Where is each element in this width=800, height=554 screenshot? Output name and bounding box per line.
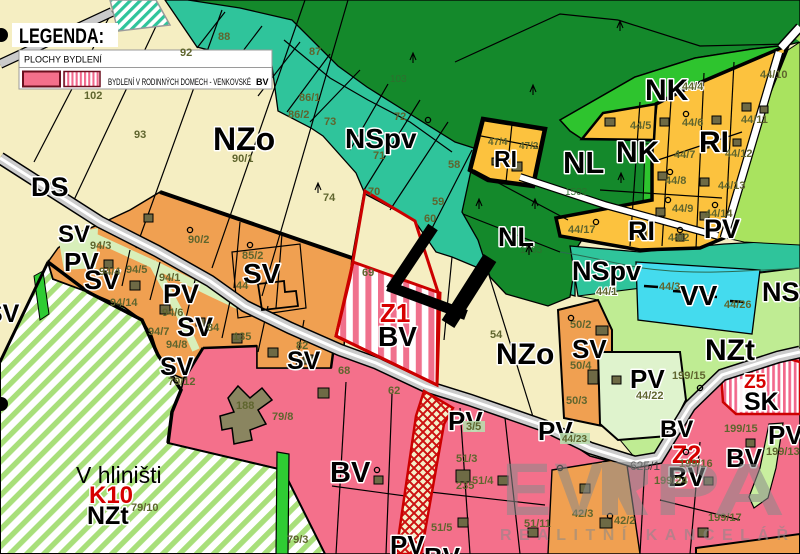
svg-text:72: 72 — [394, 111, 406, 123]
svg-text:44/9: 44/9 — [672, 203, 693, 215]
svg-text:44/7: 44/7 — [674, 149, 695, 161]
svg-text:94/6: 94/6 — [162, 307, 183, 319]
svg-text:44/4: 44/4 — [682, 81, 704, 93]
svg-text:NZt: NZt — [705, 334, 755, 367]
svg-text:199/15: 199/15 — [724, 423, 758, 435]
svg-text:51/5: 51/5 — [431, 522, 452, 534]
svg-text:79/8: 79/8 — [272, 411, 293, 423]
svg-text:PLOCHY BYDLENÍ: PLOCHY BYDLENÍ — [24, 55, 102, 65]
svg-text:79/12: 79/12 — [168, 376, 196, 388]
svg-text:44/8: 44/8 — [665, 175, 686, 187]
svg-text:84: 84 — [207, 322, 220, 334]
svg-text:EV: EV — [502, 448, 607, 531]
svg-text:90/2: 90/2 — [188, 234, 209, 246]
svg-text:79/10: 79/10 — [131, 502, 159, 514]
svg-text:NZt: NZt — [87, 502, 129, 530]
svg-text:94/8: 94/8 — [166, 339, 187, 351]
svg-text:RI: RI — [628, 216, 655, 246]
svg-text:44/5: 44/5 — [630, 120, 651, 132]
svg-text:SV: SV — [0, 300, 20, 328]
svg-text:RI: RI — [494, 146, 517, 172]
svg-text:60: 60 — [424, 213, 436, 225]
svg-text:44/11: 44/11 — [741, 114, 768, 126]
svg-text:94/14: 94/14 — [110, 297, 138, 309]
svg-text:VV: VV — [680, 280, 718, 311]
svg-text:68: 68 — [338, 365, 350, 377]
svg-text:47/4: 47/4 — [488, 137, 508, 148]
svg-text:NZo: NZo — [496, 338, 554, 371]
svg-text:103: 103 — [390, 74, 407, 85]
svg-text:94/4: 94/4 — [99, 266, 121, 278]
svg-text:74: 74 — [323, 192, 336, 204]
svg-text:50/4: 50/4 — [570, 360, 592, 372]
svg-text:235: 235 — [456, 480, 474, 492]
svg-text:102: 102 — [84, 90, 102, 102]
svg-text:3/5: 3/5 — [466, 421, 481, 433]
svg-text:199/15: 199/15 — [672, 370, 706, 382]
svg-text:93: 93 — [134, 129, 146, 141]
svg-text:51/4: 51/4 — [472, 475, 494, 487]
svg-text:50/3: 50/3 — [566, 395, 587, 407]
svg-text:44/3: 44/3 — [659, 281, 680, 293]
svg-text:PA: PA — [654, 448, 785, 531]
svg-text:94/5: 94/5 — [126, 264, 147, 276]
svg-text:NZo: NZo — [213, 121, 275, 157]
svg-text:54: 54 — [490, 329, 503, 341]
svg-text:BV: BV — [660, 416, 693, 443]
svg-text:94/1: 94/1 — [159, 272, 180, 284]
svg-text:NK: NK — [616, 136, 660, 169]
svg-text:LEGENDA:: LEGENDA: — [19, 25, 104, 48]
svg-text:71: 71 — [373, 150, 385, 162]
svg-text:79/3: 79/3 — [287, 534, 308, 546]
svg-text:58: 58 — [448, 159, 460, 171]
svg-text:44/1: 44/1 — [596, 286, 617, 298]
svg-text:85/2: 85/2 — [242, 250, 263, 262]
svg-text:59: 59 — [432, 196, 444, 208]
svg-text:BV: BV — [378, 321, 417, 352]
svg-text:SV: SV — [243, 258, 281, 289]
svg-text:135: 135 — [233, 331, 251, 343]
svg-text:DS: DS — [31, 172, 69, 202]
svg-text:44/23: 44/23 — [562, 434, 587, 445]
svg-text:1502: 1502 — [565, 187, 588, 198]
svg-text:44/13: 44/13 — [718, 180, 746, 192]
svg-text:NSp: NSp — [762, 277, 800, 307]
svg-text:44/14: 44/14 — [705, 208, 733, 220]
svg-text:82: 82 — [296, 340, 308, 352]
svg-text:BV: BV — [424, 542, 461, 554]
svg-text:86/1: 86/1 — [299, 92, 320, 104]
svg-text:44/22: 44/22 — [636, 390, 664, 402]
svg-text:44/10: 44/10 — [760, 69, 788, 81]
svg-text:86/2: 86/2 — [288, 109, 309, 121]
svg-text:PV: PV — [390, 530, 425, 554]
svg-text:BV: BV — [256, 77, 269, 87]
svg-text:62: 62 — [388, 385, 400, 397]
svg-text:47/2: 47/2 — [519, 141, 539, 152]
svg-text:SV: SV — [58, 221, 90, 248]
svg-text:90/1: 90/1 — [232, 153, 253, 165]
svg-text:51/3: 51/3 — [456, 453, 477, 465]
svg-text:94/3: 94/3 — [90, 240, 111, 252]
svg-text:44/26: 44/26 — [724, 299, 752, 311]
svg-text:87: 87 — [309, 46, 321, 58]
svg-text:44/12: 44/12 — [725, 148, 753, 160]
svg-text:188: 188 — [236, 400, 254, 412]
svg-text:73: 73 — [324, 116, 336, 128]
svg-text:SK: SK — [744, 388, 779, 416]
svg-text:92: 92 — [180, 47, 192, 59]
svg-text:BYDLENÍ V RODINNÝCH DOMECH - V: BYDLENÍ V RODINNÝCH DOMECH - VENKOVSKÉ — [108, 77, 251, 87]
svg-text:NSpv: NSpv — [572, 256, 641, 286]
svg-text:70: 70 — [368, 186, 380, 198]
svg-text:44/2: 44/2 — [668, 232, 689, 244]
svg-text:88: 88 — [218, 31, 230, 43]
svg-text:44/17: 44/17 — [568, 224, 596, 236]
svg-text:69: 69 — [362, 267, 374, 279]
svg-text:44: 44 — [236, 280, 249, 292]
svg-text:REALITNÍ KANCELÁŘ: REALITNÍ KANCELÁŘ — [500, 525, 796, 544]
svg-text:42/2: 42/2 — [614, 515, 635, 527]
svg-text:94/7: 94/7 — [148, 326, 169, 338]
svg-text:NL: NL — [563, 145, 604, 180]
svg-text:50/2: 50/2 — [570, 319, 591, 331]
svg-text:44/6: 44/6 — [682, 117, 703, 129]
svg-text:BV: BV — [330, 457, 371, 489]
